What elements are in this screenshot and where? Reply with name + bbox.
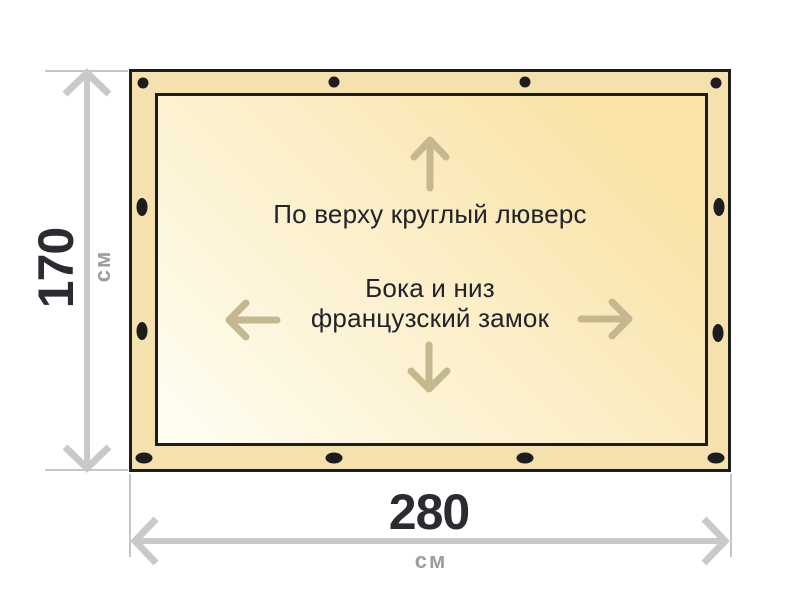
grommet-icon (713, 324, 724, 342)
height-unit: см (90, 250, 116, 283)
grommet-icon (708, 453, 725, 464)
grommet-icon (137, 198, 148, 216)
arrow-head-up-icon (65, 73, 109, 94)
grommet-icon (714, 198, 725, 216)
sides-bottom-note-line2: французский замок (230, 303, 630, 333)
grommet-icon (520, 77, 531, 88)
grommet-icon (137, 322, 148, 340)
height-value: 170 (27, 228, 85, 308)
tarp-size-diagram: По верху круглый люверс Бока и низ франц… (0, 0, 800, 600)
grommet-icon (329, 77, 340, 88)
width-unit: см (415, 548, 448, 574)
grommet-icon (711, 78, 722, 89)
grommet-icon (326, 453, 343, 464)
arrow-head-right-icon (704, 519, 725, 563)
width-value: 280 (389, 483, 469, 541)
arrow-head-left-icon (135, 519, 156, 563)
grommet-icon (138, 78, 149, 89)
sides-bottom-note: Бока и низ французский замок (230, 273, 630, 333)
grommet-icon (136, 453, 153, 464)
tarp-inner-panel (155, 93, 708, 446)
arrow-head-down-icon (65, 447, 109, 468)
grommet-icon (517, 453, 534, 464)
top-edge-note: По верху круглый люверс (230, 199, 630, 229)
sides-bottom-note-line1: Бока и низ (230, 273, 630, 303)
